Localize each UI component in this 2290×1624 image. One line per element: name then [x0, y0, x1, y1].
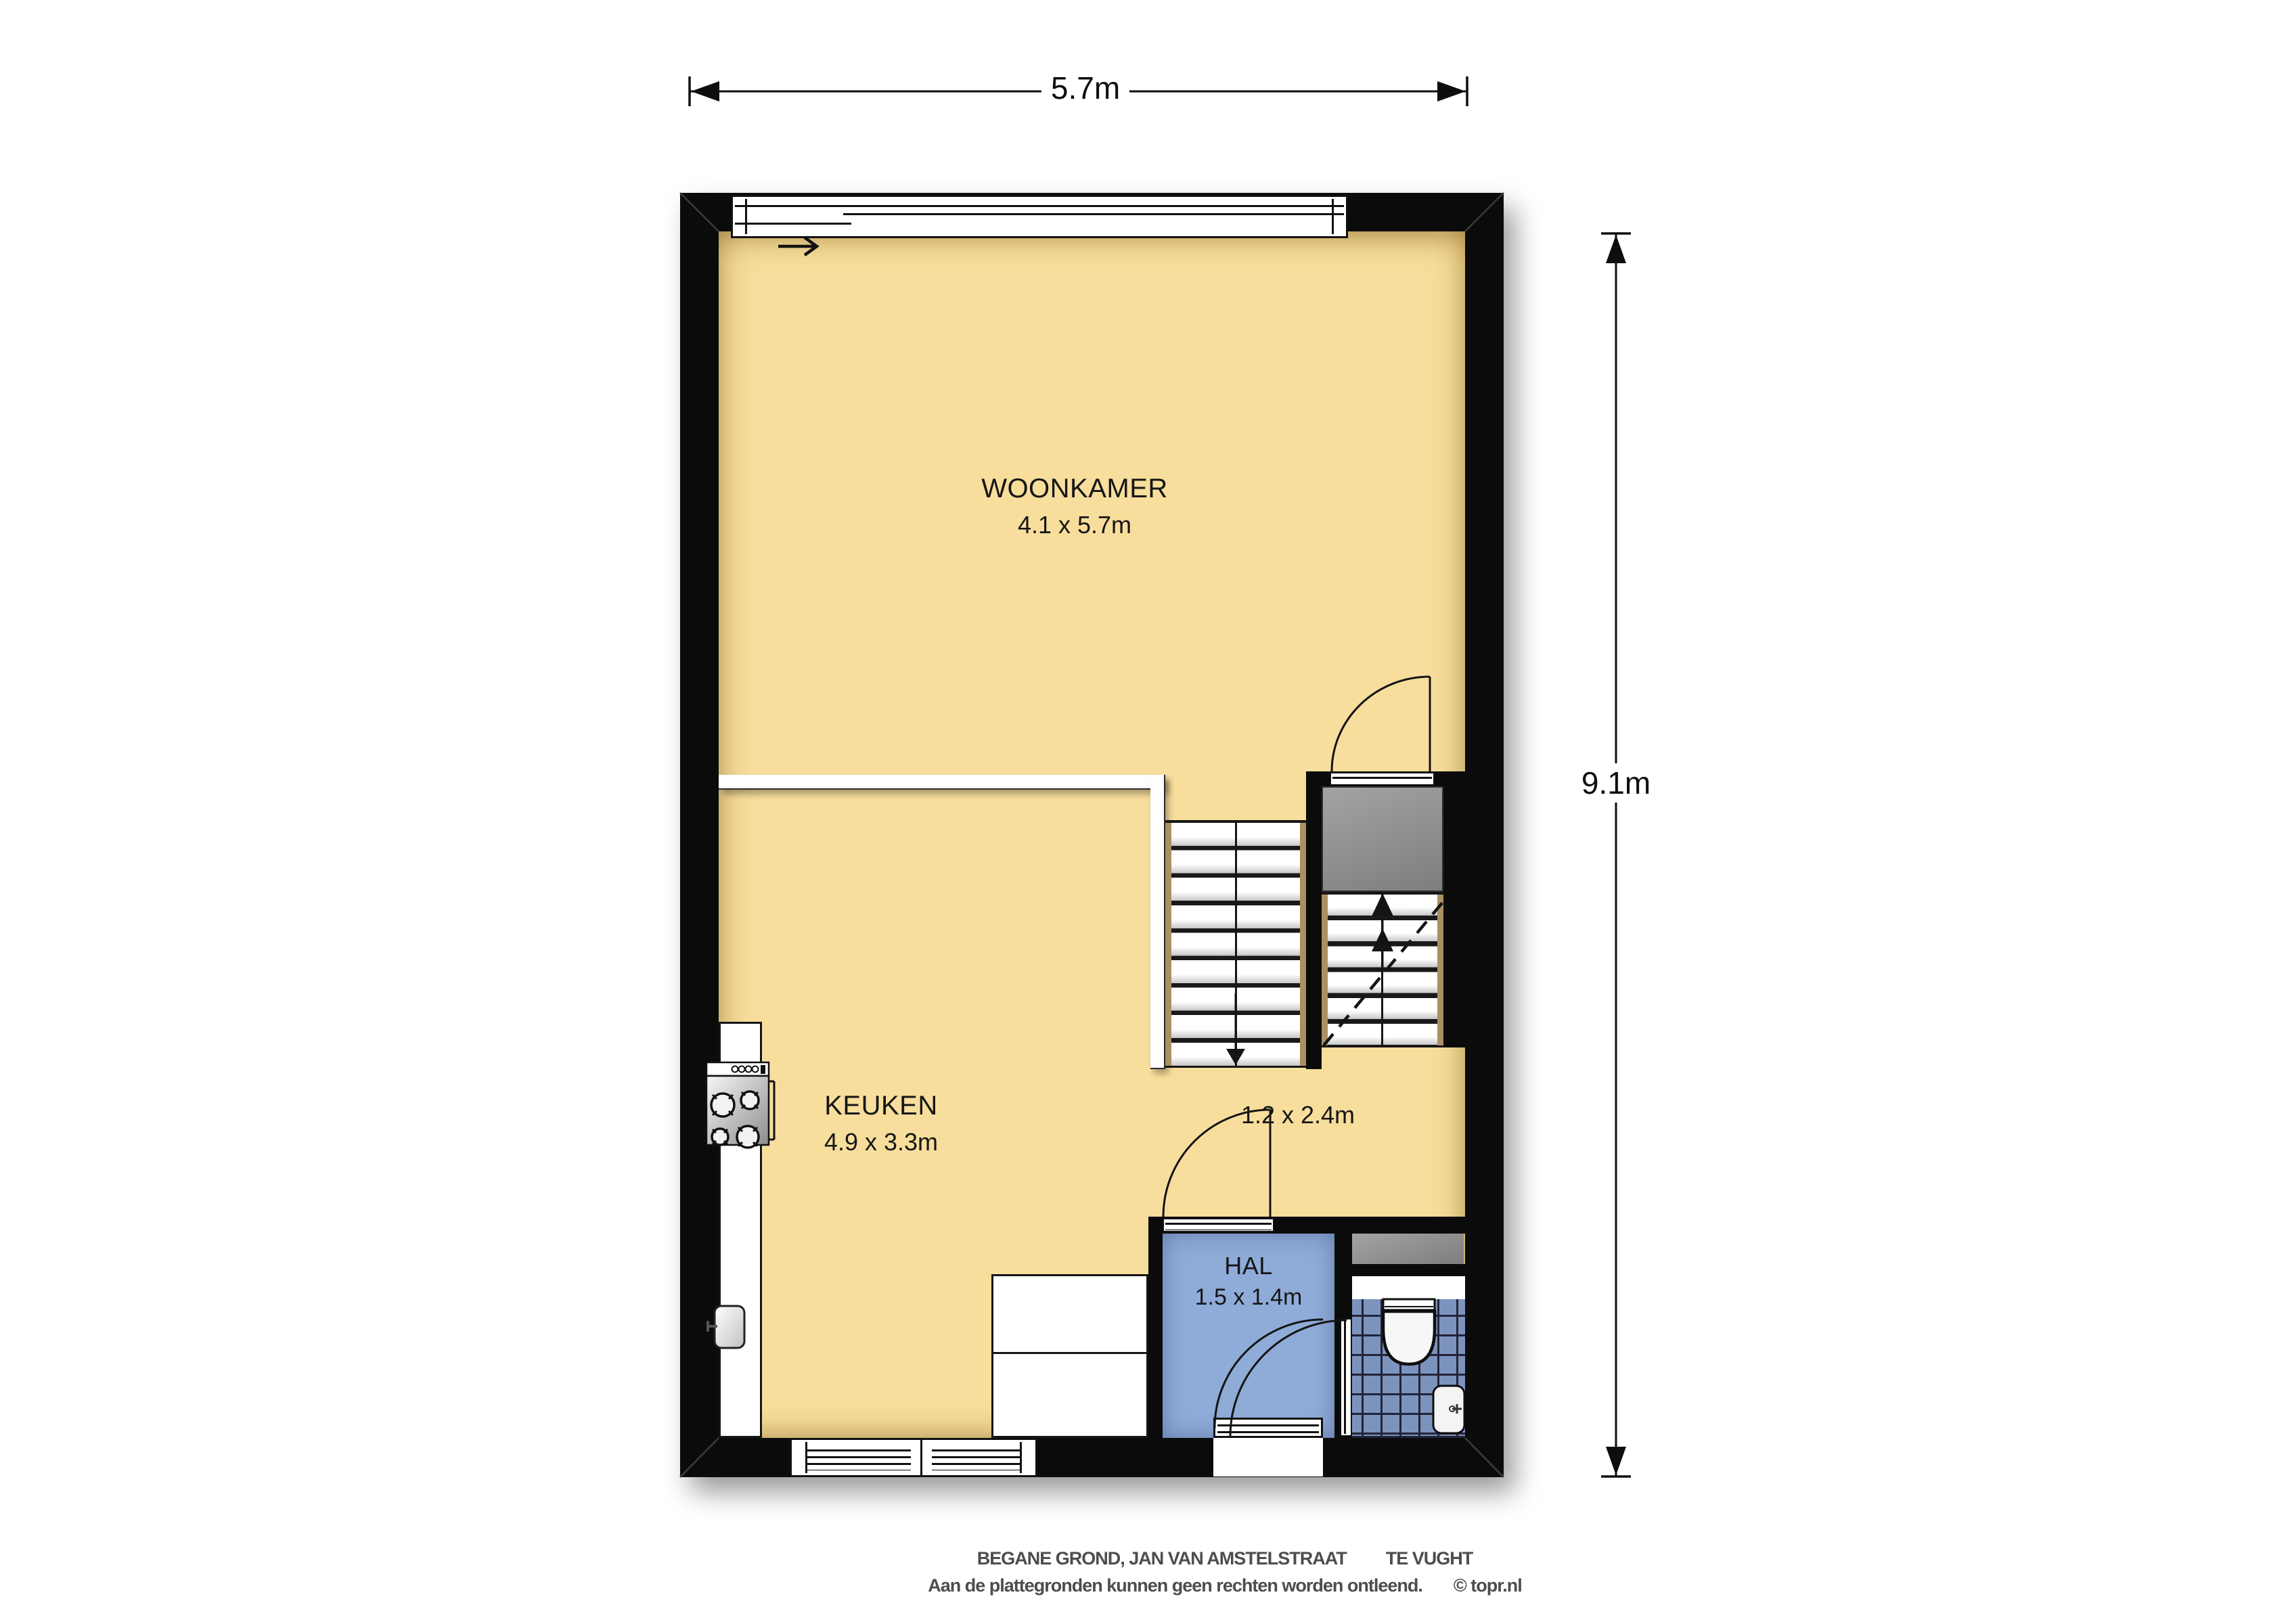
- door-lines: [1217, 1424, 1319, 1436]
- keuken-window-1: [790, 1438, 922, 1477]
- keuken-window-2: [920, 1438, 1037, 1477]
- room-label-keuken: KEUKEN 4.9 x 3.3m: [824, 1091, 938, 1156]
- width-dimension-label: 5.7m: [1041, 68, 1129, 108]
- footer-line-1: BEGANE GROND, JAN VAN AMSTELSTRAATTE VUG…: [928, 1548, 1521, 1569]
- window-glass-line: [735, 205, 1344, 207]
- cabinet-divider: [993, 1352, 1146, 1354]
- staircase-up: [1322, 892, 1443, 1047]
- stair-stringer: [1300, 823, 1306, 1066]
- footer-caption: BEGANE GROND, JAN VAN AMSTELSTRAATTE VUG…: [928, 1548, 1521, 1596]
- threshold-lines: [1165, 1223, 1272, 1230]
- stair-centerline: [1235, 823, 1237, 1066]
- kitchen-counter-left: [719, 1022, 762, 1438]
- interior-wall: [1306, 771, 1322, 1069]
- front-door: [1213, 1418, 1323, 1438]
- height-dimension-label: 9.1m: [1572, 763, 1660, 803]
- window-glass-lines: [932, 1449, 1020, 1470]
- toilet-door: [1340, 1318, 1352, 1437]
- kitchen-cabinet-block: [991, 1274, 1148, 1438]
- stair-stringer: [1437, 895, 1443, 1045]
- keuken-size: 4.9 x 3.3m: [824, 1128, 938, 1156]
- window-sash-line: [843, 213, 1344, 215]
- woonkamer-door-threshold: [1330, 772, 1435, 786]
- window-glass-lines: [807, 1449, 911, 1470]
- toilet-shelf: [1352, 1234, 1464, 1264]
- window-frame-cap: [745, 199, 747, 234]
- woonkamer-keuken-divider: [719, 775, 1165, 790]
- footer-line-2: Aan de plattegronden kunnen geen rechten…: [928, 1575, 1521, 1596]
- window-frame-cap: [1020, 1442, 1022, 1473]
- toilet-cistern-strip: [1352, 1276, 1465, 1299]
- hal-left-wall: [1148, 1234, 1163, 1438]
- threshold-lines: [1332, 777, 1432, 784]
- height-dimension-line: [1601, 233, 1631, 1476]
- stair-stringer: [1322, 895, 1328, 1045]
- stair-centerline: [1381, 895, 1383, 1045]
- woonkamer-size: 4.1 x 5.7m: [981, 511, 1168, 539]
- stair-nook-size: 1.2 x 2.4m: [1241, 1101, 1355, 1129]
- toilet-wall-strip: [1352, 1264, 1465, 1276]
- hal-size: 1.5 x 1.4m: [1195, 1284, 1303, 1311]
- interior-wall: [1443, 771, 1465, 1047]
- footer-title: BEGANE GROND, JAN VAN AMSTELSTRAAT: [977, 1548, 1347, 1569]
- window-frame-cap: [805, 1442, 807, 1473]
- toilet-tiled-floor: [1352, 1299, 1465, 1438]
- room-label-hal: HAL 1.5 x 1.4m: [1195, 1252, 1303, 1311]
- room-label-stair-nook: 1.2 x 2.4m: [1241, 1101, 1355, 1129]
- footer-disclaimer: Aan de plattegronden kunnen geen rechten…: [928, 1575, 1422, 1596]
- keuken-name: KEUKEN: [824, 1091, 938, 1121]
- stair-landing: [1322, 786, 1443, 892]
- door-lines: [1344, 1321, 1349, 1434]
- window-sash-line: [735, 223, 851, 225]
- front-door-recess: [1213, 1438, 1323, 1476]
- woonkamer-name: WOONKAMER: [981, 474, 1168, 504]
- stair-stringer: [1165, 823, 1171, 1066]
- stair-rail: [1150, 775, 1165, 1069]
- footer-city: TE VUGHT: [1386, 1548, 1473, 1569]
- hal-name: HAL: [1195, 1252, 1303, 1280]
- room-label-woonkamer: WOONKAMER 4.1 x 5.7m: [981, 474, 1168, 539]
- keuken-hal-door-threshold: [1163, 1218, 1274, 1232]
- top-sliding-window: [731, 195, 1348, 238]
- footer-copyright: © topr.nl: [1454, 1575, 1522, 1596]
- window-frame-cap: [1332, 199, 1334, 234]
- staircase-down: [1165, 820, 1306, 1068]
